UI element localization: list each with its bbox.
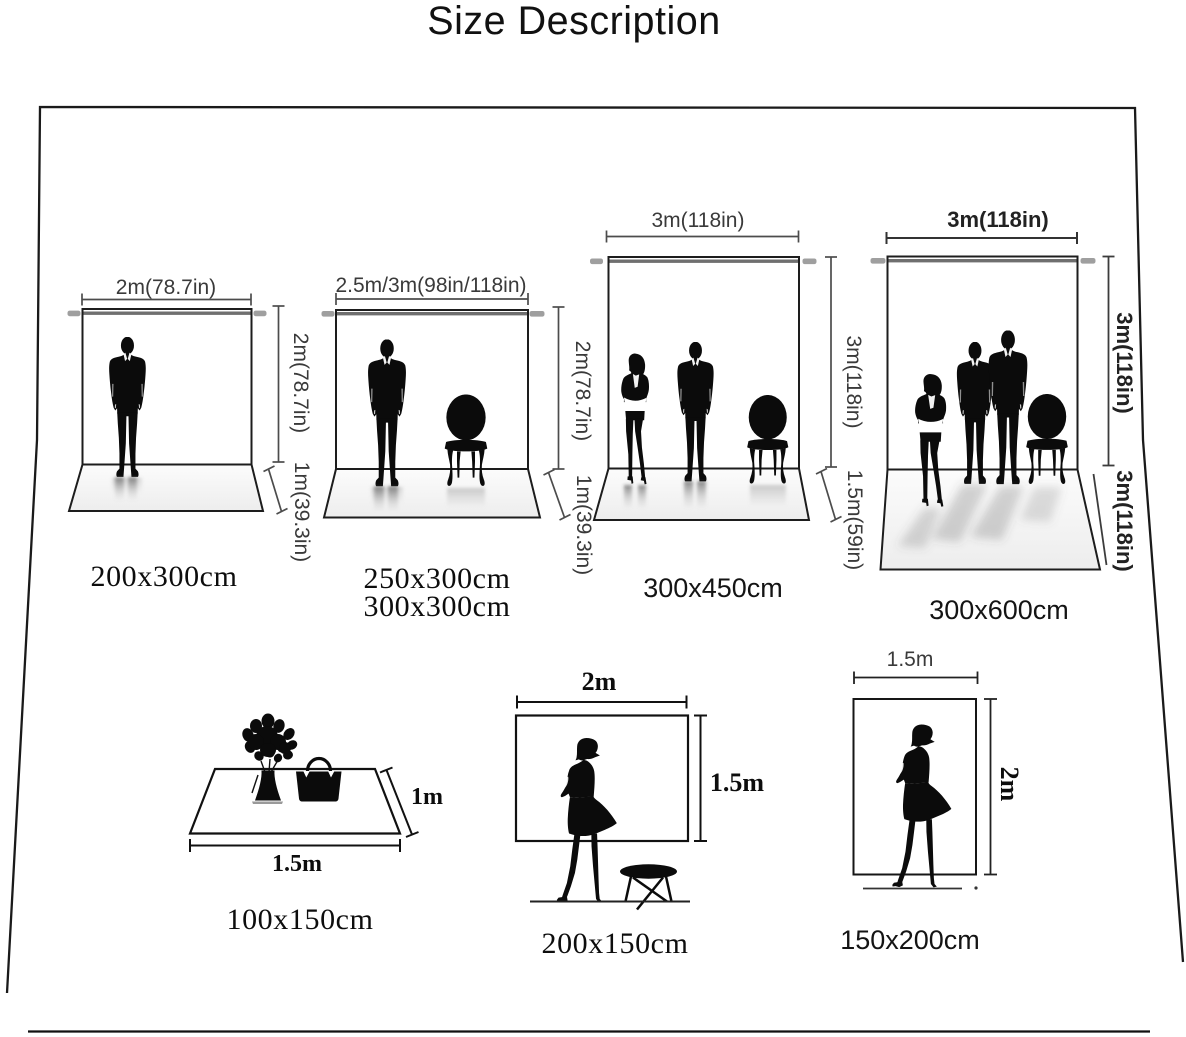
svg-text:1.5m: 1.5m bbox=[887, 648, 934, 671]
svg-text:3m(118in): 3m(118in) bbox=[842, 336, 865, 429]
svg-text:1.5m: 1.5m bbox=[710, 768, 765, 797]
svg-text:1.5m(59in): 1.5m(59in) bbox=[843, 470, 866, 570]
svg-text:300x600cm: 300x600cm bbox=[929, 595, 1069, 625]
svg-text:3m(118in): 3m(118in) bbox=[652, 209, 745, 232]
svg-text:2m(78.7in): 2m(78.7in) bbox=[116, 276, 216, 299]
svg-text:2m: 2m bbox=[995, 767, 1024, 802]
svg-text:150x200cm: 150x200cm bbox=[840, 925, 980, 955]
svg-text:3m(118in): 3m(118in) bbox=[1112, 470, 1137, 572]
svg-text:3m(118in): 3m(118in) bbox=[947, 207, 1049, 232]
svg-text:300x450cm: 300x450cm bbox=[643, 573, 783, 603]
svg-text:3m(118in): 3m(118in) bbox=[1112, 312, 1137, 414]
svg-text:1.5m: 1.5m bbox=[272, 851, 322, 877]
svg-text:100x150cm: 100x150cm bbox=[226, 903, 373, 936]
svg-text:Size Description: Size Description bbox=[427, 0, 720, 43]
svg-text:1m(39.3in): 1m(39.3in) bbox=[572, 475, 595, 575]
svg-text:200x300cm: 200x300cm bbox=[90, 560, 237, 593]
svg-text:300x300cm: 300x300cm bbox=[363, 590, 510, 623]
svg-text:2m: 2m bbox=[582, 667, 617, 696]
svg-text:200x150cm: 200x150cm bbox=[541, 927, 688, 960]
svg-text:1m(39.3in): 1m(39.3in) bbox=[290, 462, 313, 562]
svg-text:2m(78.7in): 2m(78.7in) bbox=[289, 333, 312, 433]
svg-text:2.5m/3m(98in/118in): 2.5m/3m(98in/118in) bbox=[335, 274, 526, 297]
svg-text:2m(78.7in): 2m(78.7in) bbox=[571, 341, 594, 441]
svg-text:1m: 1m bbox=[411, 784, 443, 810]
